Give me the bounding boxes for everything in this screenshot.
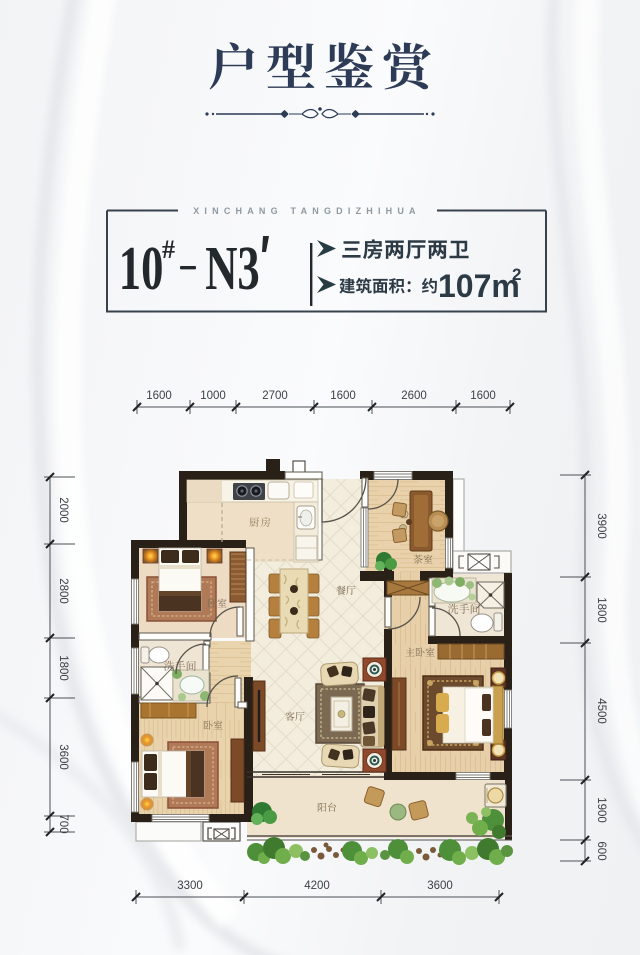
svg-text:1600: 1600 <box>146 390 172 402</box>
svg-text:2800: 2800 <box>57 578 69 604</box>
svg-text:1600: 1600 <box>470 390 496 402</box>
svg-text:3600: 3600 <box>57 744 69 770</box>
svg-text:2: 2 <box>512 265 521 284</box>
svg-text:3600: 3600 <box>427 880 453 892</box>
svg-text:2600: 2600 <box>401 390 427 402</box>
svg-text:1000: 1000 <box>200 390 226 402</box>
svg-text:XINCHANG TANGDIZHIHUA: XINCHANG TANGDIZHIHUA <box>193 206 421 216</box>
svg-text:1800: 1800 <box>57 655 69 681</box>
svg-text:3300: 3300 <box>177 880 203 892</box>
svg-text:600: 600 <box>595 841 607 860</box>
svg-text:10: 10 <box>119 234 164 303</box>
svg-text:107m: 107m <box>438 268 520 304</box>
svg-text:2700: 2700 <box>262 390 288 402</box>
svg-text:N3: N3 <box>205 234 260 303</box>
svg-text:1900: 1900 <box>595 797 607 823</box>
svg-text:4200: 4200 <box>304 880 330 892</box>
svg-text:700: 700 <box>57 814 69 833</box>
svg-text:1600: 1600 <box>330 390 356 402</box>
svg-text:4500: 4500 <box>595 698 607 724</box>
svg-text:#: # <box>162 235 175 264</box>
svg-text:3900: 3900 <box>595 513 607 539</box>
svg-text:1800: 1800 <box>595 597 607 623</box>
svg-text:2000: 2000 <box>57 497 69 523</box>
